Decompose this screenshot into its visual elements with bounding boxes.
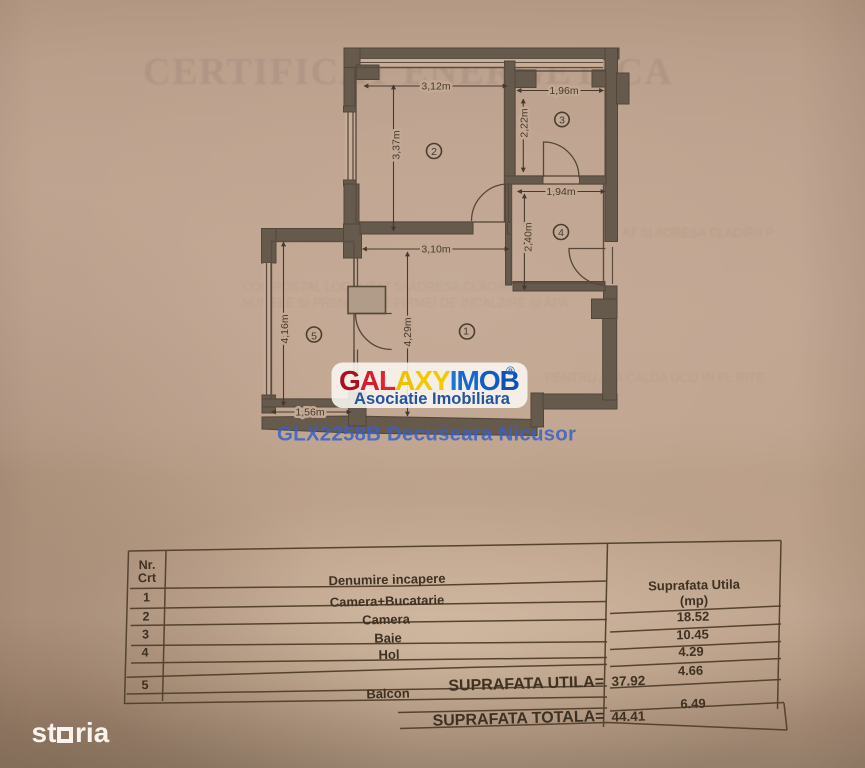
svg-text:4: 4 [141, 645, 148, 659]
svg-text:ria: ria [75, 717, 110, 748]
svg-text:Suprafata Utila: Suprafata Utila [648, 577, 741, 594]
svg-text:Crt: Crt [138, 571, 157, 585]
svg-text:18.52: 18.52 [677, 609, 710, 625]
svg-text:4: 4 [558, 227, 564, 239]
svg-text:4,16m: 4,16m [279, 314, 291, 343]
svg-text:6.49: 6.49 [680, 696, 706, 712]
svg-text:AT SI ADRESA CLADIRII P: AT SI ADRESA CLADIRII P [622, 226, 774, 240]
svg-text:37.92: 37.92 [611, 673, 645, 689]
svg-text:1,96m: 1,96m [549, 85, 578, 97]
svg-text:2: 2 [142, 609, 149, 623]
svg-text:44.41: 44.41 [611, 709, 646, 725]
svg-text:Balcon: Balcon [366, 686, 410, 702]
svg-text:1,56m: 1,56m [295, 407, 324, 419]
svg-text:®: ® [506, 364, 515, 378]
svg-text:5: 5 [141, 678, 148, 692]
svg-text:Camera+Bucatarie: Camera+Bucatarie [330, 592, 445, 609]
svg-text:4.66: 4.66 [678, 663, 704, 679]
svg-text:4.29: 4.29 [678, 644, 704, 660]
svg-text:1: 1 [463, 326, 469, 338]
svg-text:Hol: Hol [378, 647, 399, 662]
svg-text:st: st [32, 717, 57, 748]
svg-text:3,12m: 3,12m [421, 81, 450, 93]
svg-text:PENTRU APA CALDA UCO IN PL RIT: PENTRU APA CALDA UCO IN PL RITE [545, 371, 765, 385]
svg-text:3: 3 [142, 627, 149, 641]
svg-text:Baie: Baie [374, 630, 402, 646]
svg-text:3,10m: 3,10m [421, 244, 450, 256]
svg-text:2,22m: 2,22m [519, 108, 531, 137]
svg-text:1: 1 [143, 590, 150, 604]
svg-text:Denumire incapere: Denumire incapere [328, 571, 445, 588]
svg-text:1,94m: 1,94m [546, 186, 575, 198]
svg-text:2: 2 [431, 146, 437, 158]
svg-text:5: 5 [311, 331, 317, 343]
svg-text:Asociatie Imobiliara: Asociatie Imobiliara [354, 390, 511, 408]
svg-text:4,29m: 4,29m [402, 317, 414, 346]
svg-text:(mp): (mp) [680, 593, 708, 609]
svg-text:NUMELE SI PRENUMELE FIRMEI DE: NUMELE SI PRENUMELE FIRMEI DE INCALZIRE … [242, 296, 569, 310]
svg-text:2,40m: 2,40m [523, 222, 535, 251]
svg-text:Camera: Camera [362, 611, 411, 627]
svg-text:10.45: 10.45 [676, 627, 709, 643]
svg-text:3: 3 [559, 115, 565, 127]
svg-text:GLX2258B Decuseara Nicusor: GLX2258B Decuseara Nicusor [277, 423, 576, 446]
svg-text:3,37m: 3,37m [391, 130, 403, 159]
